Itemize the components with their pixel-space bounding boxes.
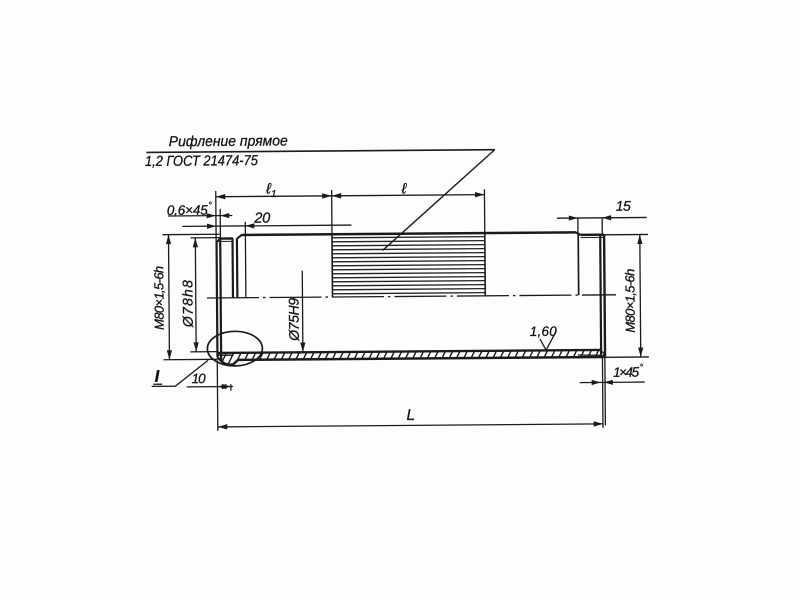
svg-text:1,2 ГОСТ 21474-75: 1,2 ГОСТ 21474-75 xyxy=(145,153,259,170)
svg-text:10: 10 xyxy=(192,371,207,386)
svg-text:Ø78h8: Ø78h8 xyxy=(179,280,195,328)
svg-text:20: 20 xyxy=(253,211,270,227)
svg-text:Рифление прямое: Рифление прямое xyxy=(169,133,288,150)
svg-text:L: L xyxy=(406,407,415,424)
svg-text:1×45: 1×45 xyxy=(613,365,640,380)
svg-text:I: I xyxy=(155,367,161,386)
svg-text:°: ° xyxy=(208,200,212,210)
svg-text:M80×1,5-6h: M80×1,5-6h xyxy=(151,266,167,330)
svg-text:Ø75H9: Ø75H9 xyxy=(285,298,301,342)
svg-text:15: 15 xyxy=(616,198,631,214)
svg-text:ℓ1: ℓ1 xyxy=(265,180,277,200)
svg-text:°: ° xyxy=(639,362,643,372)
svg-text:M80×1,5-6h: M80×1,5-6h xyxy=(622,269,638,333)
